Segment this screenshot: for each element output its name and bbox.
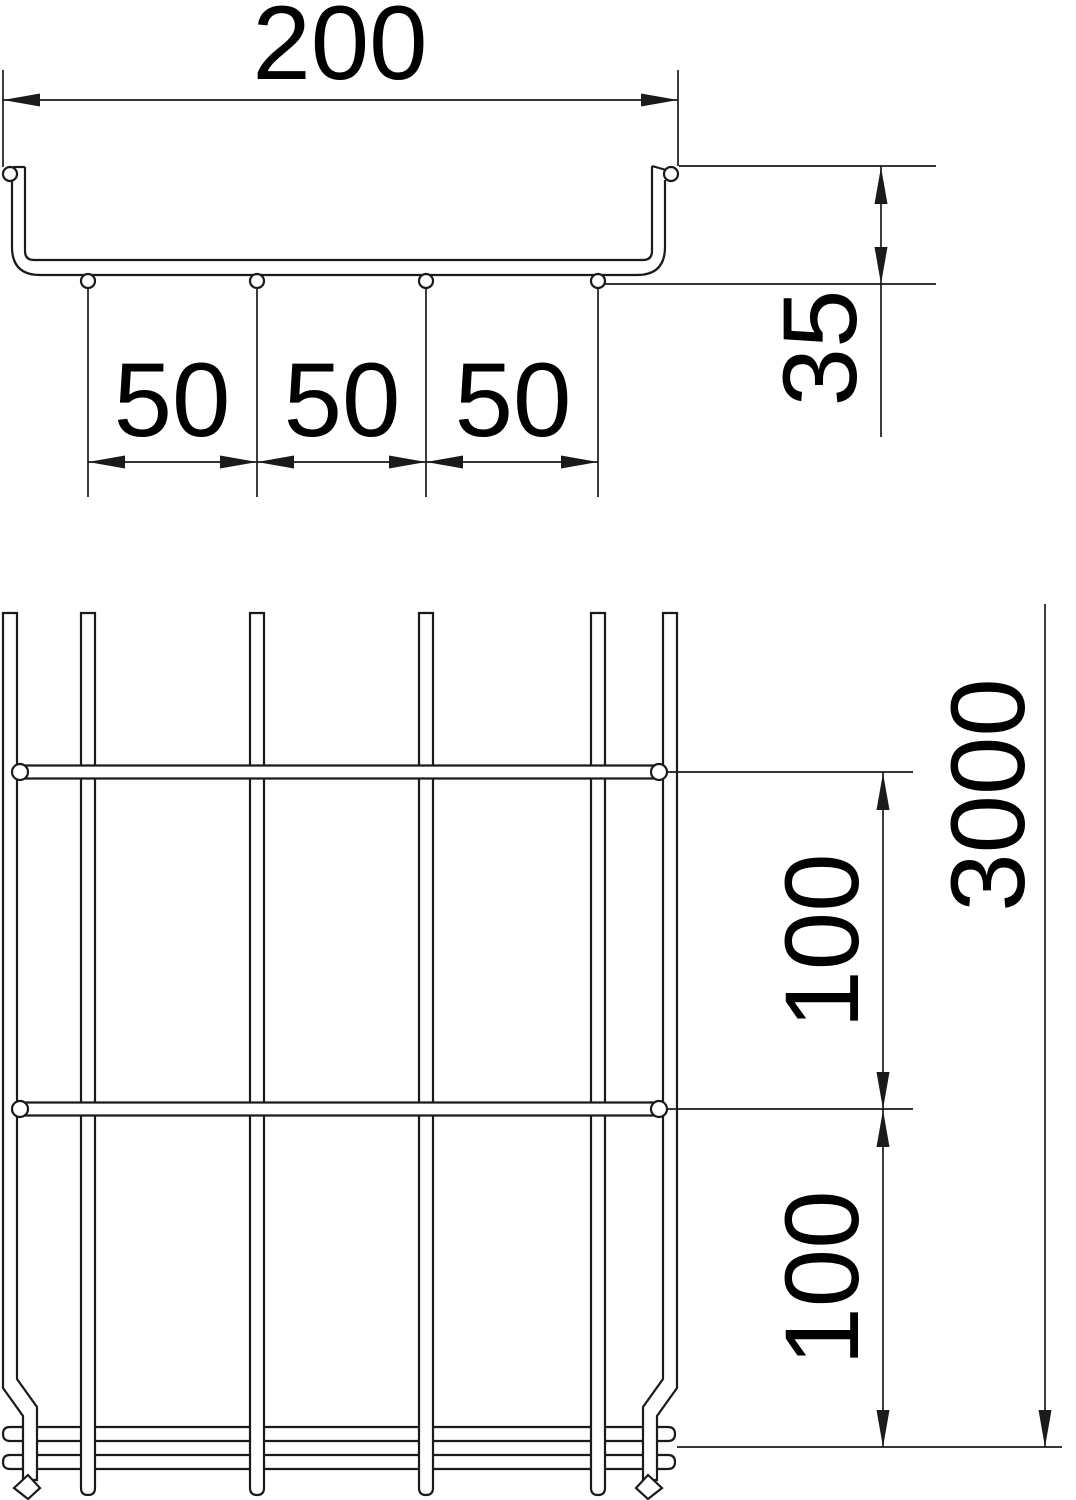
dim-label-height: 35 <box>762 290 879 407</box>
dim-label-pitch: 100 <box>764 853 881 1028</box>
cross-rung <box>12 764 667 780</box>
arrowhead-up <box>877 773 890 810</box>
arrowhead-down <box>877 1410 890 1447</box>
rung-end <box>12 1101 28 1117</box>
end-rod <box>3 1455 675 1469</box>
longitudinal-wire <box>81 613 95 1495</box>
dim-label-width: 200 <box>252 0 427 102</box>
bottom-wire-section <box>81 274 95 288</box>
tray-profile-inner <box>25 166 652 260</box>
lip-wire-right <box>664 167 678 181</box>
side-wire-left <box>3 613 37 1480</box>
wire-spacing-dimension: 50 50 50 <box>88 289 598 497</box>
rung-end <box>651 764 667 780</box>
arrowhead-up <box>875 167 888 204</box>
longitudinal-wire <box>591 613 605 1495</box>
bottom-wire-section <box>250 274 264 288</box>
arrowhead-right <box>641 94 678 107</box>
cable-tray-drawing: 200 <box>0 0 1076 1500</box>
rung-end <box>651 1101 667 1117</box>
dim-label-spacing: 50 <box>284 342 401 459</box>
cross-section-view: 200 <box>3 0 936 497</box>
dim-label-spacing: 50 <box>114 342 231 459</box>
arrowhead-down <box>877 1072 890 1109</box>
bottom-wire-section <box>419 274 433 288</box>
plan-view: 100 100 3000 <box>3 604 1062 1499</box>
bottom-wire-section <box>591 274 605 288</box>
arrowhead-down <box>875 247 888 284</box>
technical-drawing-page: 200 <box>0 0 1076 1500</box>
arrowhead-left <box>3 94 40 107</box>
dim-label-pitch: 100 <box>764 1190 881 1365</box>
arrowhead-up <box>877 1110 890 1147</box>
dim-label-spacing: 50 <box>455 342 572 459</box>
longitudinal-wire <box>250 613 264 1495</box>
dim-label-length: 3000 <box>930 678 1047 912</box>
lip-wire-left <box>3 167 17 181</box>
cross-rung <box>12 1101 667 1117</box>
length-dimension: 3000 <box>930 604 1052 1447</box>
height-dimension: 35 <box>604 166 936 437</box>
arrowhead-down <box>1039 1410 1052 1447</box>
rung-end <box>12 764 28 780</box>
side-wire-right <box>643 613 677 1480</box>
lip-connector-right <box>652 166 666 170</box>
width-dimension: 200 <box>3 0 678 167</box>
longitudinal-wire <box>419 613 433 1495</box>
end-rod <box>3 1427 675 1441</box>
